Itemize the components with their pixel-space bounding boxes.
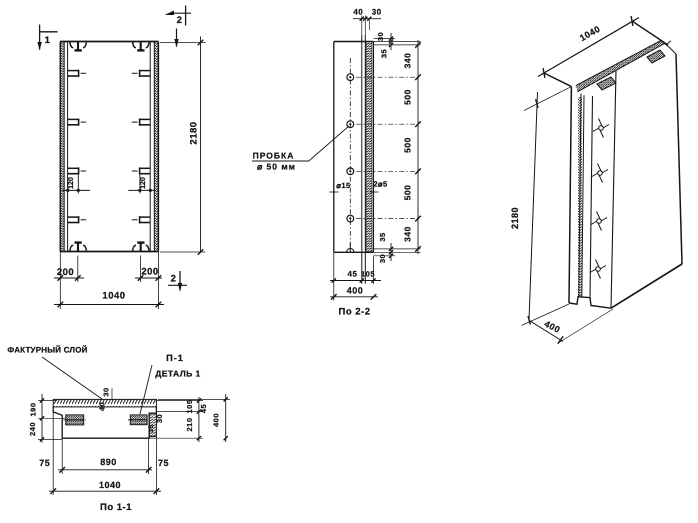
svg-text:200: 200	[141, 266, 158, 277]
svg-text:210: 210	[185, 417, 194, 431]
svg-text:35: 35	[379, 49, 388, 58]
svg-text:2180: 2180	[189, 121, 200, 144]
svg-text:45: 45	[199, 404, 208, 413]
svg-text:75: 75	[39, 458, 50, 468]
svg-text:190: 190	[29, 402, 38, 416]
svg-text:40: 40	[98, 402, 107, 411]
svg-text:2180: 2180	[510, 207, 520, 229]
svg-text:30: 30	[102, 387, 111, 396]
svg-text:890: 890	[100, 457, 117, 467]
svg-text:1040: 1040	[102, 290, 125, 301]
svg-text:200: 200	[57, 267, 74, 278]
svg-text:1040: 1040	[99, 480, 121, 490]
svg-text:30: 30	[376, 32, 385, 41]
svg-text:По 2-2: По 2-2	[338, 306, 370, 317]
svg-text:40: 40	[353, 7, 363, 16]
svg-text:35: 35	[148, 424, 155, 432]
svg-text:500: 500	[403, 89, 413, 105]
svg-text:ФАКТУРНЫЙ СЛОЙ: ФАКТУРНЫЙ СЛОЙ	[7, 345, 87, 354]
svg-text:240: 240	[28, 422, 37, 436]
svg-text:105: 105	[361, 269, 375, 278]
svg-text:45: 45	[348, 269, 358, 278]
svg-text:105: 105	[185, 399, 194, 413]
svg-text:ПРОБКА: ПРОБКА	[253, 150, 295, 160]
svg-text:30: 30	[378, 254, 387, 263]
svg-text:120: 120	[140, 177, 147, 189]
svg-text:2: 2	[177, 15, 183, 26]
svg-text:340: 340	[403, 226, 413, 242]
svg-text:340: 340	[403, 53, 413, 69]
svg-text:500: 500	[403, 185, 413, 201]
svg-text:35: 35	[378, 232, 387, 241]
svg-text:П‑1: П‑1	[166, 353, 184, 363]
svg-text:2: 2	[171, 273, 177, 284]
svg-text:120: 120	[68, 177, 75, 189]
svg-text:30: 30	[155, 414, 164, 423]
svg-text:ДЕТАЛЬ 1: ДЕТАЛЬ 1	[155, 368, 200, 378]
svg-text:75: 75	[158, 458, 169, 468]
svg-text:400: 400	[347, 285, 364, 295]
svg-text:⌀15: ⌀15	[336, 181, 350, 190]
svg-text:⌀ 50 мм: ⌀ 50 мм	[257, 161, 296, 171]
svg-text:400: 400	[212, 413, 221, 427]
svg-text:1: 1	[45, 35, 51, 46]
svg-text:По 1-1: По 1-1	[100, 502, 132, 513]
svg-text:2⌀5: 2⌀5	[373, 179, 387, 188]
svg-text:500: 500	[403, 137, 413, 153]
svg-text:30: 30	[372, 7, 382, 16]
